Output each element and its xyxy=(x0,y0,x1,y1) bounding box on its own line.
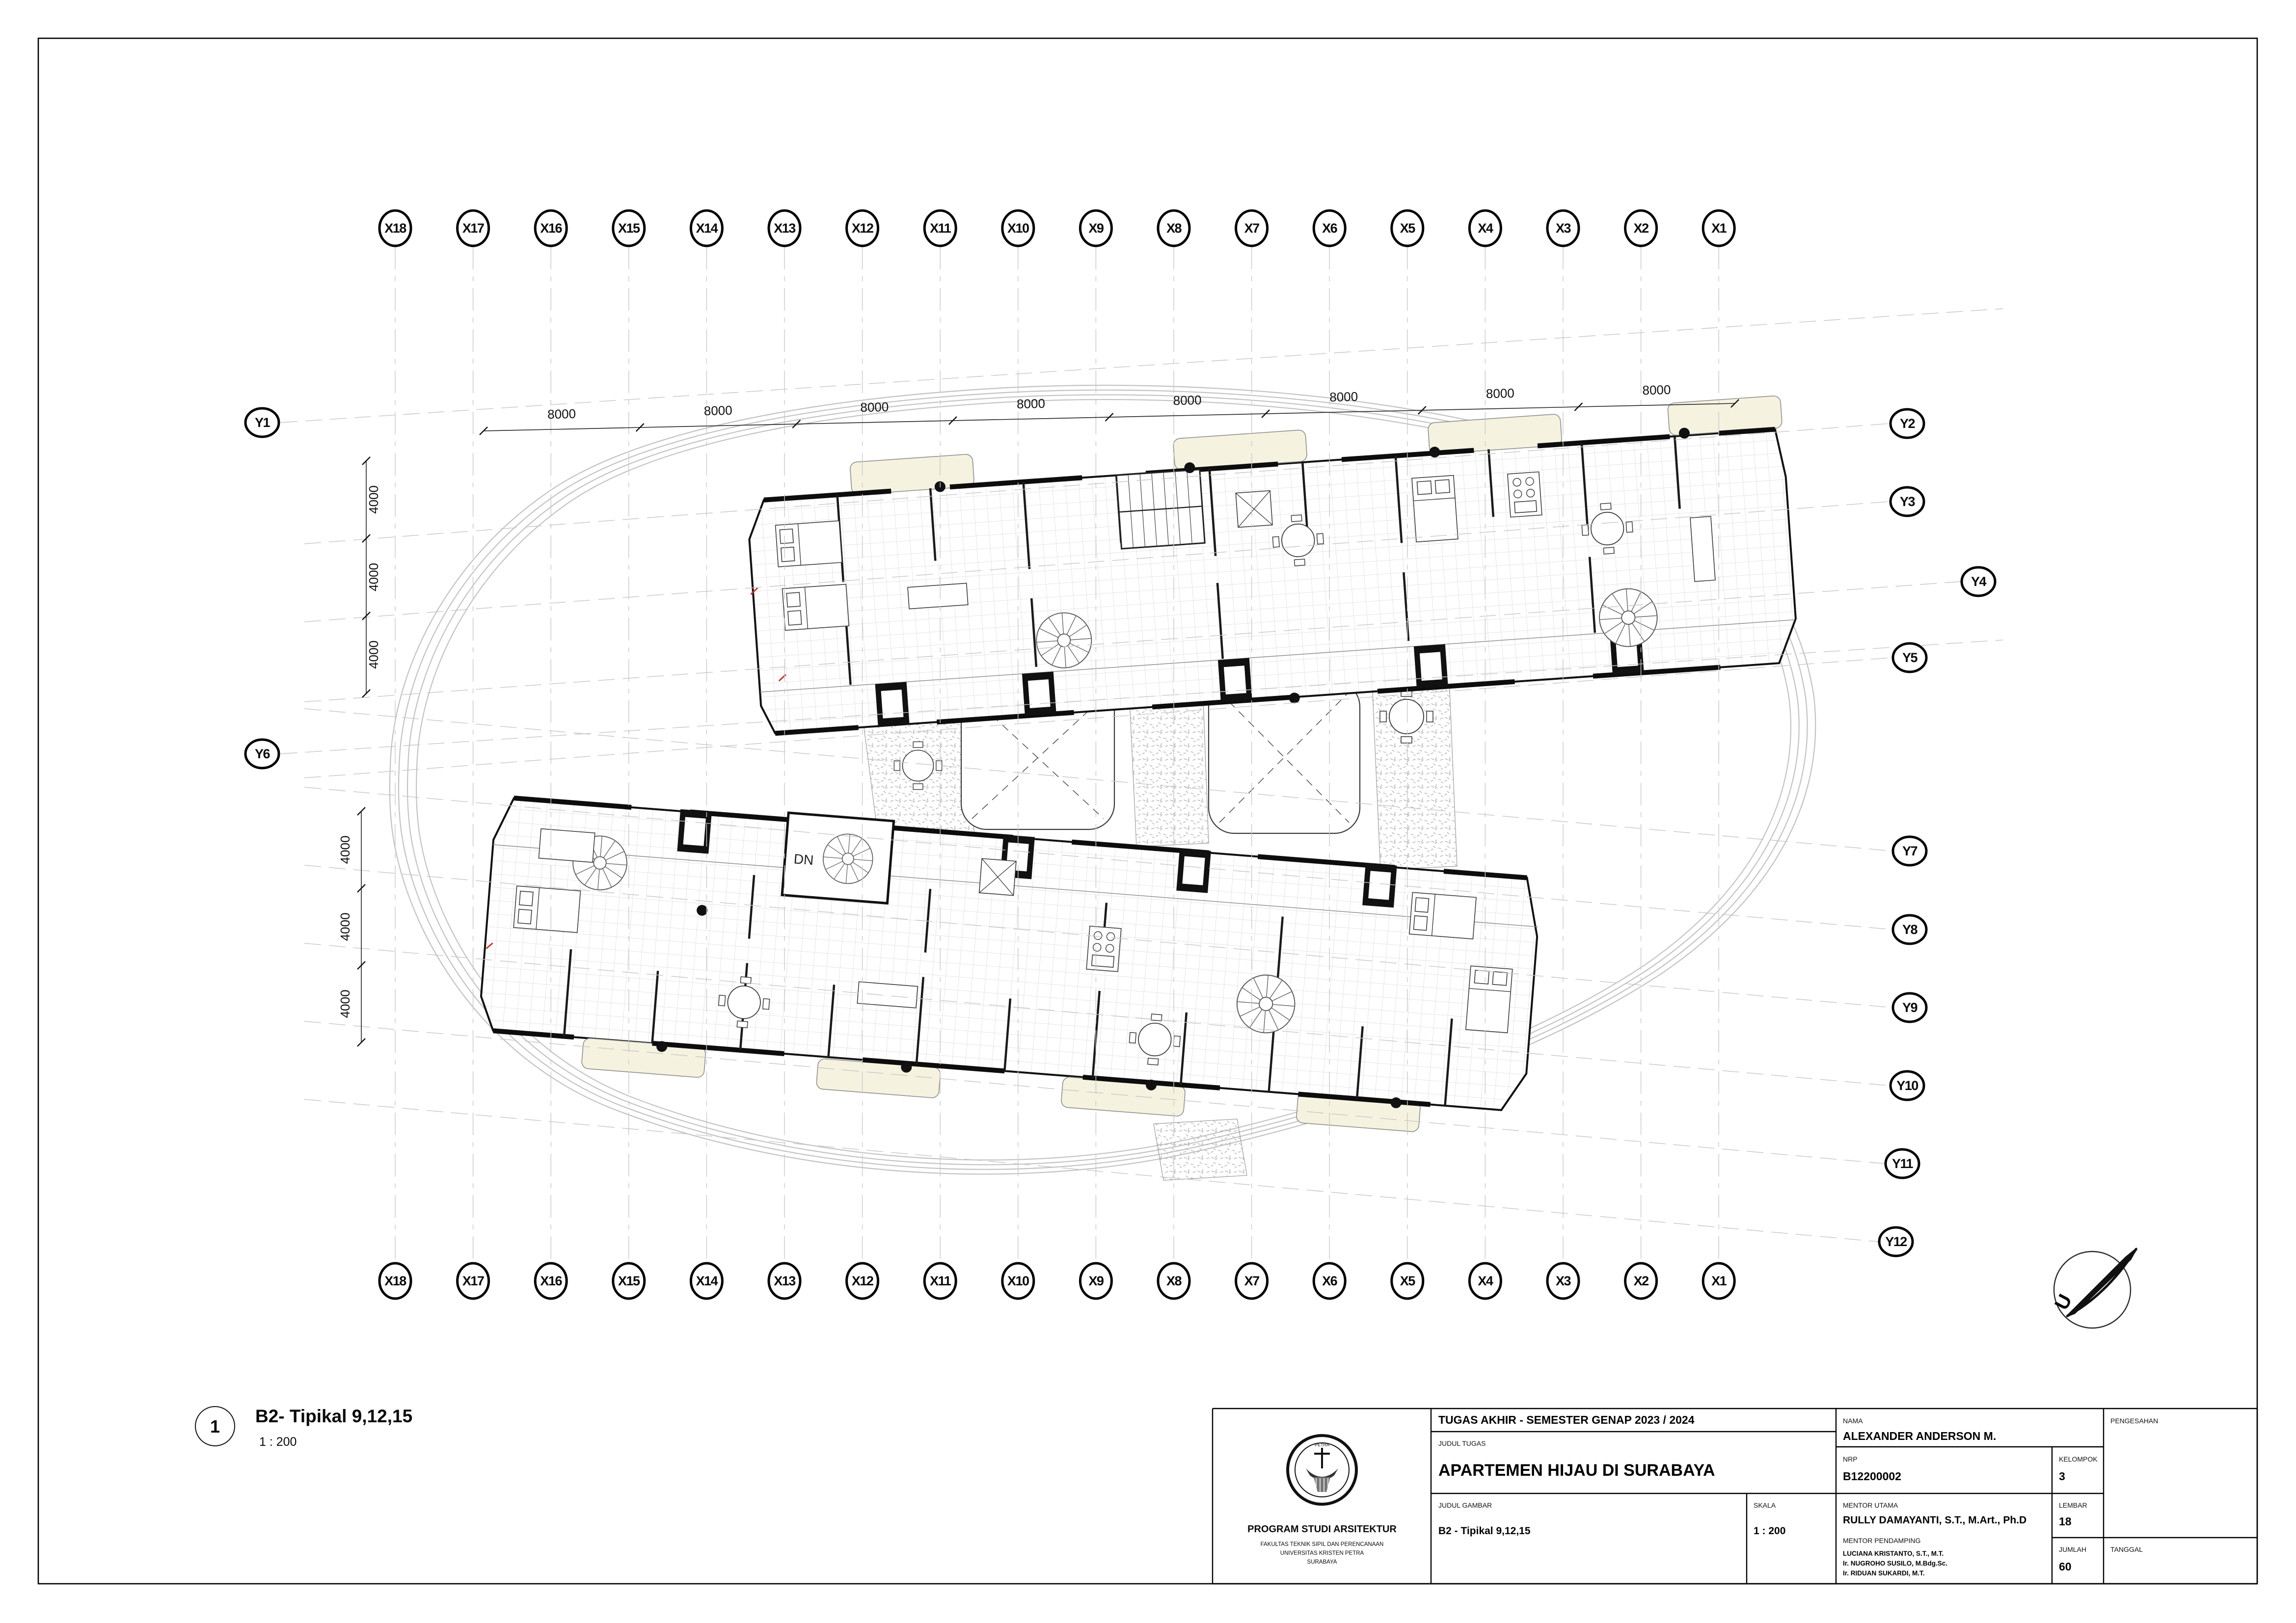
judul-tugas-label: JUDUL TUGAS xyxy=(1438,1439,1486,1447)
institution-faculty: FAKULTAS TEKNIK SIPIL DAN PERENCANAAN xyxy=(1261,1542,1384,1547)
skala-label: SKALA xyxy=(1754,1501,1776,1509)
grid-bubble-right-Y2: Y2 xyxy=(1900,416,1915,431)
grid-bubble-right-Y10: Y10 xyxy=(1896,1078,1918,1093)
grid-bubble-bottom-X9: X9 xyxy=(1088,1274,1104,1288)
seal-petra-label: PETRA xyxy=(1315,1442,1329,1447)
top-dim-1: 8000 xyxy=(703,403,732,418)
grid-bubble-top-X17: X17 xyxy=(462,221,484,236)
university-seal: PETRA xyxy=(1288,1436,1356,1504)
grid-bubble-right-Y9: Y9 xyxy=(1902,1000,1918,1015)
grid-bubble-left-Y1: Y1 xyxy=(255,415,270,430)
nama-value: ALEXANDER ANDERSON M. xyxy=(1843,1430,1996,1442)
top-dim-2: 8000 xyxy=(860,399,889,415)
mentor-utama-label: MENTOR UTAMA xyxy=(1843,1501,1898,1509)
grid-bubble-right-Y3: Y3 xyxy=(1900,494,1916,509)
grid-bubble-top-X5: X5 xyxy=(1400,221,1416,236)
dn-label: DN xyxy=(793,851,814,868)
grid-bubble-bottom-X15: X15 xyxy=(618,1274,640,1288)
left-lower-dimension-line-label-2: 4000 xyxy=(338,990,352,1018)
institution-university: UNIVERSITAS KRISTEN PETRA xyxy=(1280,1550,1364,1556)
grid-bubble-bottom-X1: X1 xyxy=(1711,1274,1727,1288)
pengesahan-label: PENGESAHAN xyxy=(2110,1417,2158,1425)
grid-bubble-top-X16: X16 xyxy=(540,221,562,236)
grid-bubble-top-X3: X3 xyxy=(1556,221,1571,236)
top-dim-3: 8000 xyxy=(1017,396,1045,411)
left-lower-dimension-line-label-0: 4000 xyxy=(338,836,352,864)
institution-program: PROGRAM STUDI ARSITEKTUR xyxy=(1247,1524,1397,1535)
jumlah-label: JUMLAH xyxy=(2059,1545,2086,1553)
grid-bubble-top-X11: X11 xyxy=(930,221,951,236)
nama-label: NAMA xyxy=(1843,1417,1863,1425)
grid-bubble-bottom-X7: X7 xyxy=(1244,1274,1260,1288)
grid-bubble-top-X14: X14 xyxy=(696,221,718,236)
grid-bubble-top-X4: X4 xyxy=(1478,221,1493,236)
judul-gambar-label: JUDUL GAMBAR xyxy=(1438,1501,1492,1509)
grid-bubble-top-X13: X13 xyxy=(774,221,796,236)
grid-bubble-top-X6: X6 xyxy=(1322,221,1338,236)
grid-bubble-left-Y6: Y6 xyxy=(255,746,270,761)
grid-bubble-top-X7: X7 xyxy=(1244,221,1260,236)
grid-bubble-bottom-X17: X17 xyxy=(462,1274,484,1288)
grid-bubble-bottom-X14: X14 xyxy=(696,1274,718,1288)
grid-bubble-bottom-X11: X11 xyxy=(930,1274,951,1288)
north-arrow: U xyxy=(2051,1249,2136,1328)
straight-stair xyxy=(1116,470,1205,549)
grid-bubble-top-X8: X8 xyxy=(1166,221,1182,236)
mentor-pendamping-label: MENTOR PENDAMPING xyxy=(1843,1537,1920,1544)
grid-bubble-top-X10: X10 xyxy=(1007,221,1029,236)
grid-bubble-right-Y11: Y11 xyxy=(1892,1156,1914,1171)
left-upper-dimension-line-label-2: 4000 xyxy=(366,640,381,669)
top-dim-7: 8000 xyxy=(1642,382,1671,398)
grid-bubble-bottom-X6: X6 xyxy=(1322,1274,1338,1288)
grid-bubble-top-X9: X9 xyxy=(1088,221,1104,236)
title-block-lines xyxy=(1213,1409,2257,1584)
nrp-value: B12200002 xyxy=(1843,1470,1901,1483)
drawing-sheet: DN X18X18X17X17X16X16X15X15X14X14X13X13X… xyxy=(0,0,2296,1623)
mentor-pendamping-1: LUCIANA KRISTANTO, S.T., M.T. xyxy=(1843,1550,1944,1557)
upper-wing xyxy=(742,396,1799,741)
lembar-label: LEMBAR xyxy=(2059,1501,2087,1509)
grid-bubble-top-X1: X1 xyxy=(1711,221,1727,236)
top-dim-6: 8000 xyxy=(1486,386,1514,401)
grid-bubble-bottom-X18: X18 xyxy=(384,1274,406,1288)
kelompok-label: KELOMPOK xyxy=(2059,1455,2098,1463)
grid-bubble-bottom-X16: X16 xyxy=(540,1274,562,1288)
grid-bubble-bottom-X13: X13 xyxy=(774,1274,796,1288)
grid-bubble-top-X18: X18 xyxy=(384,221,406,236)
tanggal-label: TANGGAL xyxy=(2110,1545,2143,1553)
judul-tugas-value: APARTEMEN HIJAU DI SURABAYA xyxy=(1438,1461,1715,1480)
drawing-title: 1 B2- Tipikal 9,12,15 1 : 200 xyxy=(195,1406,412,1449)
institution-city: SURABAYA xyxy=(1307,1559,1337,1565)
skala-value: 1 : 200 xyxy=(1754,1525,1785,1537)
grid-bubble-bottom-X8: X8 xyxy=(1166,1274,1182,1288)
title-block: PETRA PROGRAM STUDI ARSITEKTUR FAKULTAS … xyxy=(1213,1409,2257,1584)
page-title: B2- Tipikal 9,12,15 xyxy=(255,1406,412,1426)
grid-bubble-right-Y12: Y12 xyxy=(1885,1234,1907,1249)
grid-bubble-top-X12: X12 xyxy=(852,221,873,236)
dn-stair: DN xyxy=(782,813,894,903)
left-upper-dimension-line-label-0: 4000 xyxy=(366,485,381,514)
top-dim-0: 8000 xyxy=(547,406,576,422)
mentor-pendamping-2: Ir. NUGROHO SUSILO, M.Bdg.Sc. xyxy=(1843,1560,1947,1567)
grid-bubble-bottom-X12: X12 xyxy=(852,1274,873,1288)
grid-bubble-right-Y8: Y8 xyxy=(1902,922,1918,937)
page-scale: 1 : 200 xyxy=(259,1435,297,1449)
kelompok-value: 3 xyxy=(2059,1470,2065,1483)
jumlah-value: 60 xyxy=(2059,1560,2072,1573)
nrp-label: NRP xyxy=(1843,1455,1858,1463)
grid-bubble-bottom-X10: X10 xyxy=(1007,1274,1029,1288)
lembar-value: 18 xyxy=(2059,1515,2072,1528)
mentor-pendamping-3: Ir. RIDUAN SUKARDI, M.T. xyxy=(1843,1570,1925,1577)
drawing-number: 1 xyxy=(210,1416,220,1437)
judul-gambar-value: B2 - Tipikal 9,12,15 xyxy=(1438,1525,1531,1537)
top-dim-4: 8000 xyxy=(1173,393,1201,408)
floor-plan-svg: DN X18X18X17X17X16X16X15X15X14X14X13X13X… xyxy=(0,0,2296,1623)
grid-bubble-right-Y4: Y4 xyxy=(1971,574,1987,589)
grid-bubble-bottom-X4: X4 xyxy=(1478,1274,1493,1288)
top-dim-5: 8000 xyxy=(1329,389,1358,404)
grid-bubble-top-X2: X2 xyxy=(1634,221,1649,236)
gridline-Y12 xyxy=(304,1099,1878,1242)
grid-bubble-bottom-X3: X3 xyxy=(1556,1274,1571,1288)
grid-bubble-right-Y7: Y7 xyxy=(1902,844,1918,858)
structural-grid: X18X18X17X17X16X16X15X15X14X14X13X13X12X… xyxy=(245,211,2003,1299)
titleblock-header: TUGAS AKHIR - SEMESTER GENAP 2023 / 2024 xyxy=(1438,1413,1695,1426)
grid-bubble-bottom-X5: X5 xyxy=(1400,1274,1416,1288)
left-upper-dimension-line-label-1: 4000 xyxy=(366,563,381,591)
grid-bubble-bottom-X2: X2 xyxy=(1634,1274,1649,1288)
grid-bubble-right-Y5: Y5 xyxy=(1902,650,1918,665)
grid-bubble-top-X15: X15 xyxy=(618,221,640,236)
left-lower-dimension-line-label-1: 4000 xyxy=(338,913,352,941)
mentor-utama-value: RULLY DAMAYANTI, S.T., M.Art., Ph.D xyxy=(1843,1515,2026,1526)
